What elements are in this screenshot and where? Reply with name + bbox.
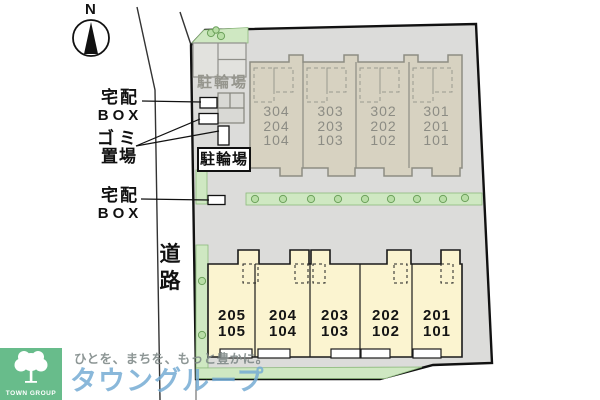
bicycle-parking-area-label: 駐輪場 (197, 71, 248, 92)
unit-101: 101 (411, 324, 463, 340)
garbage-area-label-line2: 置場 (95, 148, 143, 166)
garbage-structure-1 (199, 114, 218, 125)
unit-103u: 103 (304, 133, 357, 148)
garbage-structure-2 (218, 126, 229, 145)
unit-204u: 204 (250, 119, 303, 134)
site-plan: N 宅配 BOX ゴミ 置場 宅配 BOX 道 路 駐輪場 駐輪場 304 20… (0, 0, 600, 400)
brand-company-name: タウングループ (70, 359, 264, 398)
delivery-box-label-top-line1: 宅配 (95, 89, 145, 107)
delivery-box-label-bottom-line1: 宅配 (95, 187, 145, 205)
staircase-structure (218, 93, 244, 123)
town-group-logo: TOWN GROUP (0, 348, 62, 400)
unit-101u: 101 (410, 133, 463, 148)
unit-201: 201 (411, 308, 463, 324)
unit-label-lower-2: 204 104 (257, 308, 309, 339)
unit-105: 105 (206, 324, 258, 340)
unit-102u: 102 (357, 133, 410, 148)
unit-201u: 201 (410, 119, 463, 134)
unit-202: 202 (360, 308, 412, 324)
delivery-box-label-bottom: 宅配 BOX (95, 187, 145, 223)
garbage-area-label: ゴミ 置場 (95, 130, 143, 166)
logo-org-label: TOWN GROUP (0, 390, 62, 397)
garbage-area-label-line1: ゴミ (95, 130, 143, 148)
unit-102: 102 (360, 324, 412, 340)
unit-label-upper-2: 303 203 103 (304, 104, 357, 148)
lower-building (208, 250, 462, 357)
compass-icon (73, 20, 109, 56)
green-strip-left-small (196, 170, 207, 204)
unit-label-lower-3: 203 103 (309, 308, 361, 339)
delivery-box-label-bottom-line2: BOX (95, 205, 145, 223)
unit-103: 103 (309, 324, 361, 340)
unit-label-lower-4: 202 102 (360, 308, 412, 339)
unit-label-upper-4: 301 201 101 (410, 104, 463, 148)
unit-304: 304 (250, 104, 303, 119)
delivery-box-label-top: 宅配 BOX (95, 89, 145, 125)
unit-302: 302 (357, 104, 410, 119)
tree-icon (0, 348, 62, 388)
unit-202u: 202 (357, 119, 410, 134)
unit-204: 204 (257, 308, 309, 324)
road-label-char2: 路 (158, 268, 182, 295)
delivery-box-structure-bottom (208, 196, 225, 205)
delivery-box-structure-top (200, 98, 217, 109)
unit-label-upper-1: 304 204 104 (250, 104, 303, 148)
unit-203: 203 (309, 308, 361, 324)
delivery-box-label-top-line2: BOX (95, 107, 145, 125)
unit-104u: 104 (250, 133, 303, 148)
unit-205: 205 (206, 308, 258, 324)
road-lines (137, 7, 196, 400)
unit-label-upper-3: 302 202 102 (357, 104, 410, 148)
unit-label-lower-5: 201 101 (411, 308, 463, 339)
road-label: 道 路 (158, 241, 182, 295)
road-label-char1: 道 (158, 241, 182, 268)
site-plan-drawing (0, 0, 600, 400)
compass-north-label: N (85, 1, 96, 18)
unit-104: 104 (257, 324, 309, 340)
unit-203u: 203 (304, 119, 357, 134)
unit-303: 303 (304, 104, 357, 119)
bicycle-parking-sign: 駐輪場 (197, 147, 251, 172)
unit-301: 301 (410, 104, 463, 119)
unit-label-lower-1: 205 105 (206, 308, 258, 339)
